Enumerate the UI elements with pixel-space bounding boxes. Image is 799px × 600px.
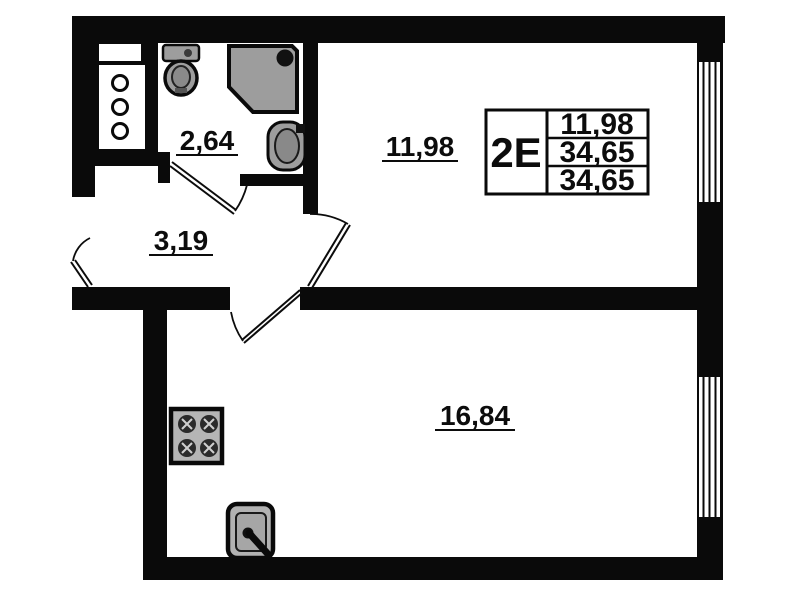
- kitchen-area-label: 16,84: [440, 400, 510, 431]
- door-entrance-swing-arc: [73, 238, 90, 261]
- door-living-room: [308, 214, 350, 288]
- shaft-niche: [99, 44, 141, 61]
- shaft-hole-3: [113, 124, 128, 139]
- door-living-room-swing-arc: [310, 214, 348, 224]
- shower: [229, 46, 297, 112]
- stove: [171, 409, 222, 463]
- wall-bathroom-right: [303, 43, 318, 214]
- window-lower: [699, 377, 720, 517]
- floor-plan-svg: 2,64 3,19 11,98 16,84 2E 11,98 34,65 34,…: [0, 0, 799, 600]
- walls: [72, 16, 725, 580]
- shower-drain: [277, 50, 294, 67]
- shaft-hole-2: [113, 100, 128, 115]
- door-living-room-leaf: [312, 225, 350, 288]
- toilet: [163, 45, 199, 95]
- door-bathroom-leaf: [172, 162, 236, 210]
- bathroom-sink-bowl: [275, 129, 299, 163]
- shaft-hole-1: [113, 76, 128, 91]
- door-kitchen-swing-arc: [231, 312, 243, 341]
- living-room-area-label: 11,98: [386, 131, 455, 162]
- utility-shaft: [99, 44, 145, 149]
- window-upper: [699, 62, 720, 202]
- bathroom-sink: [268, 122, 305, 170]
- unit-area-row-3: 34,65: [559, 164, 634, 197]
- wall-top: [72, 16, 725, 43]
- wall-bathroom-door-jamb: [158, 152, 170, 183]
- bathroom-area-label: 2,64: [180, 125, 235, 156]
- bathroom-sink-tap: [296, 124, 305, 133]
- door-bathroom-swing-arc: [235, 185, 247, 211]
- room-labels: 2,64 3,19 11,98 16,84: [149, 125, 515, 431]
- hallway-area-label: 3,19: [154, 225, 209, 256]
- wall-lower-left: [143, 287, 167, 580]
- toilet-flush-button: [184, 49, 192, 57]
- toilet-bowl-inner: [172, 66, 190, 88]
- unit-info-table: 2E 11,98 34,65 34,65: [486, 108, 648, 197]
- unit-type-label: 2E: [490, 129, 541, 176]
- toilet-seat-hinge: [175, 88, 187, 93]
- kitchen-sink: [228, 504, 273, 558]
- door-entrance: [71, 238, 92, 287]
- door-kitchen-leaf: [242, 290, 300, 340]
- wall-left-upper: [72, 16, 95, 197]
- door-bathroom: [170, 162, 247, 214]
- wall-middle-right: [300, 287, 723, 310]
- toilet-tank: [163, 45, 199, 61]
- floor-plan: 2,64 3,19 11,98 16,84 2E 11,98 34,65 34,…: [0, 0, 799, 600]
- door-kitchen: [231, 290, 302, 343]
- wall-bottom: [143, 557, 723, 580]
